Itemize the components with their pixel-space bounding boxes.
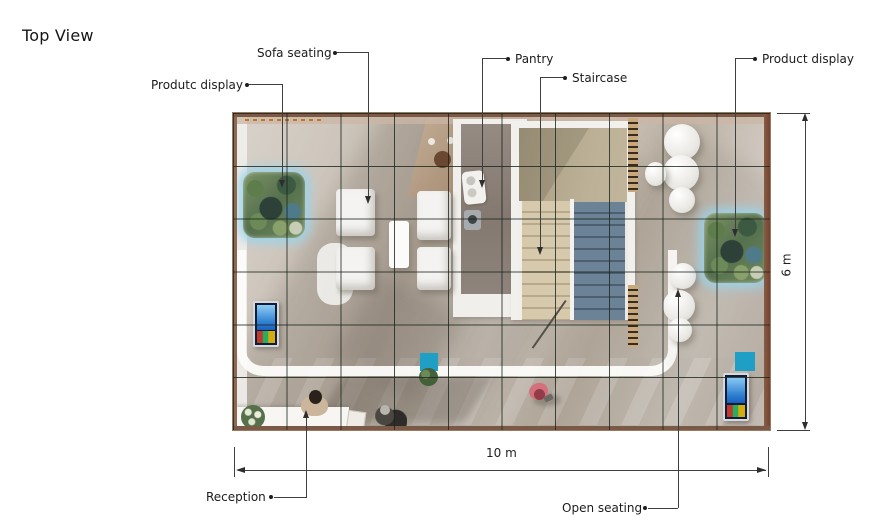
- leader-arrow-icon: [675, 289, 681, 297]
- floor-plan-render: [233, 113, 770, 430]
- wall-right: [764, 113, 770, 430]
- label-sofa-seating: Sofa seating: [257, 46, 332, 60]
- leader-arrow-icon: [365, 196, 371, 204]
- pantry-hob: [464, 210, 481, 230]
- dimension-arrow-icon: [757, 467, 766, 473]
- dimension-line-width: [238, 470, 766, 471]
- staircase-steps-lower: [574, 202, 628, 320]
- dimension-tick: [234, 447, 235, 477]
- dimension-line-height: [805, 116, 806, 427]
- wood-slat-screen: [628, 285, 638, 347]
- leader-line: [482, 58, 506, 59]
- pantry-room-floor: [461, 124, 513, 294]
- coffee-table: [389, 221, 409, 268]
- dimension-tick: [777, 430, 810, 431]
- wall-top: [233, 113, 770, 117]
- leader-line: [306, 417, 307, 498]
- round-chair: [645, 162, 666, 186]
- leader-line: [368, 52, 369, 197]
- dimension-arrow-icon: [802, 422, 808, 430]
- leader-dot: [563, 76, 567, 80]
- wall-bottom: [233, 426, 770, 430]
- stool: [428, 138, 435, 145]
- leader-line: [648, 508, 678, 509]
- leader-dot: [506, 57, 510, 61]
- leader-line: [274, 497, 306, 498]
- leader-line: [735, 58, 753, 59]
- dimension-arrow-icon: [236, 467, 245, 473]
- leader-line: [540, 77, 563, 78]
- leader-line: [735, 58, 736, 230]
- page-title: Top View: [22, 26, 94, 45]
- label-open-seating: Open seating: [562, 501, 642, 515]
- label-product-display-right: Product display: [762, 52, 854, 66]
- round-chair: [668, 318, 692, 342]
- sofa: [417, 247, 451, 290]
- leader-arrow-icon: [537, 247, 543, 255]
- product-display-panel-left: [243, 172, 305, 238]
- walking-person-head: [534, 389, 545, 400]
- kiosk-display: [727, 377, 745, 403]
- dimension-arrow-icon: [802, 113, 808, 121]
- digital-kiosk-screen: [723, 373, 749, 421]
- receptionist-head: [309, 390, 322, 404]
- leader-arrow-icon: [279, 180, 285, 188]
- label-product-display-left: Produtc display: [151, 78, 243, 92]
- canvas: Top View: [0, 0, 890, 526]
- wall-left: [233, 113, 237, 430]
- leader-dot: [269, 495, 273, 499]
- round-table: [663, 155, 699, 191]
- kiosk-posters: [257, 331, 275, 343]
- high-table: [434, 151, 451, 168]
- leader-line: [249, 84, 282, 85]
- leader-dot: [753, 57, 757, 61]
- visitor-head: [380, 405, 390, 415]
- leader-line: [482, 58, 483, 181]
- kiosk-display: [257, 305, 275, 330]
- leader-line: [678, 296, 679, 508]
- dimension-tick: [768, 447, 769, 477]
- leader-arrow-icon: [303, 410, 309, 418]
- label-staircase: Staircase: [572, 71, 627, 85]
- kiosk-posters: [727, 405, 745, 417]
- dimension-height-value: 6 m: [780, 253, 794, 276]
- round-chair: [669, 187, 695, 213]
- dashed-marker-line: [245, 119, 323, 121]
- label-pantry: Pantry: [515, 52, 553, 66]
- wood-slat-screen: [628, 118, 638, 192]
- dimension-width-value: 10 m: [486, 446, 517, 460]
- sofa: [417, 191, 451, 240]
- leader-line: [282, 84, 283, 181]
- leader-arrow-icon: [479, 180, 485, 188]
- digital-kiosk-screen: [253, 301, 279, 347]
- teal-floor-decal: [735, 352, 755, 371]
- label-reception: Reception: [206, 490, 266, 504]
- leader-line: [337, 52, 368, 53]
- leader-line: [540, 77, 541, 248]
- round-chair: [670, 263, 696, 289]
- potted-plant: [419, 368, 438, 386]
- leader-dot: [643, 506, 647, 510]
- sofa: [336, 247, 375, 290]
- leader-arrow-icon: [732, 229, 738, 237]
